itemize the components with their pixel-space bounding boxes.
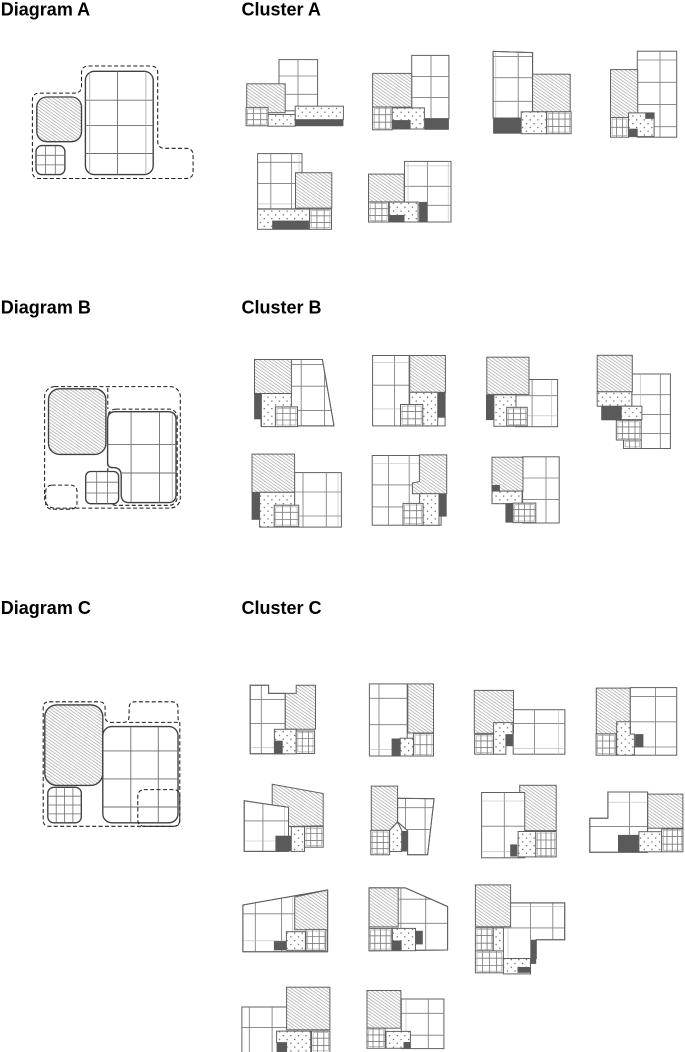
svg-text:Diagram C: Diagram C xyxy=(1,598,91,618)
svg-text:Cluster A: Cluster A xyxy=(242,0,321,19)
svg-text:Cluster C: Cluster C xyxy=(242,598,322,618)
svg-text:Cluster B: Cluster B xyxy=(242,297,322,317)
svg-text:Diagram A: Diagram A xyxy=(1,0,90,19)
svg-text:Diagram B: Diagram B xyxy=(1,297,91,317)
